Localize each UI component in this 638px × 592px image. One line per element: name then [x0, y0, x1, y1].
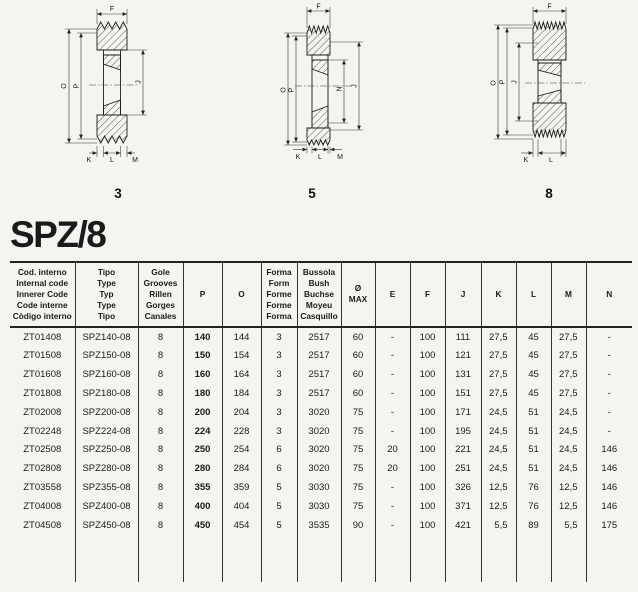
dim-label-f: F [547, 4, 551, 11]
table-cell: 371 [445, 497, 481, 516]
table-cell: 5,5 [481, 516, 516, 535]
column-header-line: Forme [263, 289, 296, 300]
table-cell: 8 [138, 384, 183, 403]
table-cell: 100 [410, 346, 445, 365]
column-header-line: Còdigo interno [11, 311, 74, 322]
table-cell: 8 [138, 422, 183, 441]
table-cell: 171 [445, 403, 481, 422]
table-cell: 454 [222, 516, 261, 535]
table-cell: 24,5 [481, 403, 516, 422]
column-header-line: Internal code [11, 278, 74, 289]
empty-cell [297, 534, 341, 582]
column-header: FormaFormFormeFormeForma [261, 262, 297, 327]
empty-filler-row [10, 534, 632, 582]
column-header: GoleGroovesRillenGorgesCanales [138, 262, 183, 327]
column-header-line: Canales [140, 311, 182, 322]
table-cell: SPZ250-08 [75, 440, 138, 459]
column-header-line: Tipo [77, 267, 137, 278]
table-cell: 251 [445, 459, 481, 478]
table-cell: 76 [516, 478, 551, 497]
table-cell: 51 [516, 403, 551, 422]
table-cell: 200 [183, 403, 222, 422]
dim-label-o: O [61, 83, 68, 89]
table-cell: 146 [586, 440, 632, 459]
table-cell: SPZ400-08 [75, 497, 138, 516]
table-cell: 2517 [297, 365, 341, 384]
table-cell: - [375, 327, 410, 347]
column-header-line: M [553, 289, 585, 300]
table-cell: 6 [261, 440, 297, 459]
pulley-diagram-form-5: F O P N [245, 2, 420, 215]
table-cell: ZT01808 [10, 384, 75, 403]
table-cell: 5 [261, 516, 297, 535]
table-row: ZT02508SPZ250-08825025463020752010022124… [10, 440, 632, 459]
dim-label-j: J [352, 84, 359, 88]
empty-cell [75, 534, 138, 582]
dim-label-l: L [110, 157, 114, 164]
table-cell: 160 [183, 365, 222, 384]
table-cell: 12,5 [551, 478, 586, 497]
column-header-line: L [518, 289, 550, 300]
table-cell: 75 [341, 478, 375, 497]
table-cell: 27,5 [551, 327, 586, 347]
column-header: M [551, 262, 586, 327]
table-cell: 100 [410, 516, 445, 535]
table-cell: SPZ180-08 [75, 384, 138, 403]
table-cell: 45 [516, 365, 551, 384]
table-cell: 3 [261, 365, 297, 384]
column-header-line: Bussola [299, 267, 340, 278]
dim-label-m: M [132, 157, 138, 164]
table-cell: 2517 [297, 327, 341, 347]
table-cell: 3 [261, 384, 297, 403]
table-cell: - [375, 478, 410, 497]
table-cell: 224 [183, 422, 222, 441]
dim-label-m: M [337, 154, 343, 161]
table-cell: 51 [516, 422, 551, 441]
table-cell: 75 [341, 440, 375, 459]
table-cell: 100 [410, 365, 445, 384]
table-cell: 8 [138, 327, 183, 347]
table-cell: 280 [183, 459, 222, 478]
column-header-line: Innerer Code [11, 289, 74, 300]
table-cell: 27,5 [551, 346, 586, 365]
column-header-line: O [224, 289, 260, 300]
dim-label-p: P [74, 83, 81, 88]
table-cell: - [586, 403, 632, 422]
table-cell: 180 [183, 384, 222, 403]
table-row: ZT01808SPZ180-0881801843251760-10015127,… [10, 384, 632, 403]
dim-label-k: K [87, 157, 92, 164]
column-header-line: Buchse [299, 289, 340, 300]
table-cell: 204 [222, 403, 261, 422]
table-cell: SPZ450-08 [75, 516, 138, 535]
table-cell: 6 [261, 459, 297, 478]
table-cell: 146 [586, 459, 632, 478]
table-cell: 5 [261, 497, 297, 516]
table-cell: 12,5 [481, 478, 516, 497]
table-row: ZT01608SPZ160-0881601643251760-10013127,… [10, 365, 632, 384]
column-header: K [481, 262, 516, 327]
table-row: ZT04008SPZ400-0884004045303075-10037112,… [10, 497, 632, 516]
column-header: Cod. internoInternal codeInnerer CodeCod… [10, 262, 75, 327]
table-cell: - [375, 422, 410, 441]
table-cell: 12,5 [481, 497, 516, 516]
table-cell: 24,5 [481, 440, 516, 459]
table-cell: 100 [410, 478, 445, 497]
column-header-line: Casquillo [299, 311, 340, 322]
empty-cell [261, 534, 297, 582]
table-cell: 100 [410, 497, 445, 516]
table-cell: 3 [261, 327, 297, 347]
table-cell: 27,5 [551, 365, 586, 384]
column-header-line: P [185, 289, 221, 300]
table-cell: 8 [138, 478, 183, 497]
table-row: ZT02248SPZ224-0882242283302075-10019524,… [10, 422, 632, 441]
column-header-line: Tipo [77, 311, 137, 322]
column-header: N [586, 262, 632, 327]
table-cell: - [586, 327, 632, 347]
dim-label-p: P [289, 87, 296, 92]
column-header-line: K [483, 289, 515, 300]
dim-label-l: L [318, 154, 322, 161]
table-cell: 121 [445, 346, 481, 365]
table-cell: ZT01408 [10, 327, 75, 347]
table-cell: 45 [516, 327, 551, 347]
table-cell: - [375, 516, 410, 535]
column-header-line: N [588, 289, 632, 300]
table-cell: 3020 [297, 422, 341, 441]
form-label-8: 8 [545, 186, 553, 201]
pulley-diagram-form-3: F O P J [55, 2, 230, 215]
pulley-diagrams-section: F O P J [0, 0, 638, 212]
column-header-line: Bush [299, 278, 340, 289]
table-cell: 140 [183, 327, 222, 347]
dim-label-j: J [512, 80, 519, 84]
dim-label-f: F [316, 4, 320, 11]
table-cell: 20 [375, 459, 410, 478]
table-cell: 8 [138, 346, 183, 365]
table-cell: 27,5 [481, 384, 516, 403]
column-header: E [375, 262, 410, 327]
dim-label-o: O [491, 80, 498, 86]
table-cell: 75 [341, 422, 375, 441]
table-cell: - [375, 346, 410, 365]
table-cell: 144 [222, 327, 261, 347]
table-cell: - [375, 403, 410, 422]
table-cell: 400 [183, 497, 222, 516]
column-header-line: Type [77, 300, 137, 311]
table-cell: ZT02248 [10, 422, 75, 441]
table-cell: 164 [222, 365, 261, 384]
table-cell: 250 [183, 440, 222, 459]
dim-label-f: F [110, 6, 114, 13]
column-header: J [445, 262, 481, 327]
table-cell: 131 [445, 365, 481, 384]
column-header: BussolaBushBuchseMoyeuCasquillo [297, 262, 341, 327]
dim-label-n: N [337, 86, 344, 91]
form-label-3: 3 [114, 186, 122, 201]
column-header-line: Ø [343, 283, 374, 294]
table-cell: 90 [341, 516, 375, 535]
table-cell: - [375, 497, 410, 516]
table-cell: 146 [586, 478, 632, 497]
spec-table-header: Cod. internoInternal codeInnerer CodeCod… [10, 262, 632, 327]
table-cell: 359 [222, 478, 261, 497]
column-header-line: Code interne [11, 300, 74, 311]
table-cell: 355 [183, 478, 222, 497]
table-cell: SPZ200-08 [75, 403, 138, 422]
table-cell: 8 [138, 497, 183, 516]
column-header-line: Type [77, 278, 137, 289]
table-cell: 100 [410, 440, 445, 459]
dim-label-l: L [549, 157, 553, 164]
table-cell: 228 [222, 422, 261, 441]
table-cell: 146 [586, 497, 632, 516]
table-row: ZT02808SPZ280-08828028463020752010025124… [10, 459, 632, 478]
table-cell: 3 [261, 403, 297, 422]
table-cell: - [586, 346, 632, 365]
table-cell: 100 [410, 459, 445, 478]
pulley-diagram-form-8: F O P J [445, 2, 638, 215]
table-cell: 20 [375, 440, 410, 459]
empty-cell [222, 534, 261, 582]
table-cell: 27,5 [551, 384, 586, 403]
table-cell: 284 [222, 459, 261, 478]
column-header-line: Forma [263, 311, 296, 322]
table-cell: 27,5 [481, 346, 516, 365]
table-cell: 195 [445, 422, 481, 441]
table-cell: 24,5 [551, 422, 586, 441]
page-title: SPZ/8 [10, 216, 638, 253]
table-row: ZT03558SPZ355-0883553595303075-10032612,… [10, 478, 632, 497]
table-cell: 8 [138, 403, 183, 422]
table-cell: ZT01508 [10, 346, 75, 365]
column-header: L [516, 262, 551, 327]
table-cell: 3030 [297, 497, 341, 516]
table-cell: 404 [222, 497, 261, 516]
table-cell: ZT02808 [10, 459, 75, 478]
column-header-line: J [447, 289, 480, 300]
table-cell: 76 [516, 497, 551, 516]
form-label-5: 5 [308, 186, 316, 201]
column-header: ØMAX [341, 262, 375, 327]
column-header: F [410, 262, 445, 327]
table-cell: 24,5 [551, 459, 586, 478]
table-cell: SPZ224-08 [75, 422, 138, 441]
table-cell: 60 [341, 365, 375, 384]
table-cell: 111 [445, 327, 481, 347]
table-cell: 45 [516, 346, 551, 365]
table-cell: - [586, 365, 632, 384]
table-cell: ZT02508 [10, 440, 75, 459]
table-cell: 75 [341, 403, 375, 422]
table-cell: 3020 [297, 440, 341, 459]
table-cell: 51 [516, 440, 551, 459]
table-cell: 3535 [297, 516, 341, 535]
table-row: ZT01408SPZ140-0881401443251760-10011127,… [10, 327, 632, 347]
table-cell: 75 [341, 497, 375, 516]
table-cell: SPZ280-08 [75, 459, 138, 478]
dim-label-j: J [136, 80, 143, 84]
table-cell: 3020 [297, 459, 341, 478]
table-cell: 154 [222, 346, 261, 365]
empty-cell [183, 534, 222, 582]
table-cell: ZT04508 [10, 516, 75, 535]
header-row: Cod. internoInternal codeInnerer CodeCod… [10, 262, 632, 327]
table-cell: 89 [516, 516, 551, 535]
table-cell: 221 [445, 440, 481, 459]
column-header-line: Moyeu [299, 300, 340, 311]
table-cell: 27,5 [481, 327, 516, 347]
table-cell: 100 [410, 327, 445, 347]
table-cell: 150 [183, 346, 222, 365]
table-cell: 60 [341, 327, 375, 347]
column-header-line: Form [263, 278, 296, 289]
spec-table-body: ZT01408SPZ140-0881401443251760-10011127,… [10, 327, 632, 583]
table-cell: 421 [445, 516, 481, 535]
column-header-line: MAX [343, 294, 374, 305]
column-header-line: Gorges [140, 300, 182, 311]
table-cell: 8 [138, 440, 183, 459]
table-cell: 2517 [297, 384, 341, 403]
spec-table: Cod. internoInternal codeInnerer CodeCod… [10, 261, 632, 582]
column-header: O [222, 262, 261, 327]
table-cell: 24,5 [481, 422, 516, 441]
empty-cell [410, 534, 445, 582]
column-header-line: Grooves [140, 278, 182, 289]
table-cell: 8 [138, 459, 183, 478]
column-header-line: Typ [77, 289, 137, 300]
table-cell: 12,5 [551, 497, 586, 516]
table-row: ZT01508SPZ150-0881501543251760-10012127,… [10, 346, 632, 365]
table-cell: SPZ150-08 [75, 346, 138, 365]
table-cell: 24,5 [551, 403, 586, 422]
dim-label-k: K [296, 154, 301, 161]
column-header-line: Cod. interno [11, 267, 74, 278]
empty-cell [375, 534, 410, 582]
table-cell: 60 [341, 346, 375, 365]
table-cell: ZT02008 [10, 403, 75, 422]
table-cell: 151 [445, 384, 481, 403]
table-cell: - [586, 422, 632, 441]
table-cell: 175 [586, 516, 632, 535]
table-cell: SPZ140-08 [75, 327, 138, 347]
table-cell: 3030 [297, 478, 341, 497]
empty-cell [551, 534, 586, 582]
table-cell: 3 [261, 346, 297, 365]
table-cell: 100 [410, 403, 445, 422]
empty-cell [586, 534, 632, 582]
column-header-line: Rillen [140, 289, 182, 300]
table-cell: 100 [410, 384, 445, 403]
empty-cell [445, 534, 481, 582]
table-row: ZT02008SPZ200-0882002043302075-10017124,… [10, 403, 632, 422]
table-cell: 5 [261, 478, 297, 497]
column-header: TipoTypeTypTypeTipo [75, 262, 138, 327]
table-cell: 45 [516, 384, 551, 403]
table-cell: SPZ160-08 [75, 365, 138, 384]
column-header-line: Forme [263, 300, 296, 311]
table-cell: ZT01608 [10, 365, 75, 384]
table-cell: - [586, 384, 632, 403]
empty-cell [10, 534, 75, 582]
table-cell: - [375, 384, 410, 403]
empty-cell [516, 534, 551, 582]
dim-label-k: K [524, 157, 529, 164]
table-cell: 450 [183, 516, 222, 535]
table-cell: 5,5 [551, 516, 586, 535]
column-header-line: Gole [140, 267, 182, 278]
table-cell: 100 [410, 422, 445, 441]
table-cell: 24,5 [551, 440, 586, 459]
column-header-line: F [412, 289, 444, 300]
table-cell: 3020 [297, 403, 341, 422]
table-cell: ZT04008 [10, 497, 75, 516]
table-cell: 8 [138, 365, 183, 384]
table-cell: - [375, 365, 410, 384]
table-cell: 75 [341, 459, 375, 478]
empty-cell [341, 534, 375, 582]
empty-cell [481, 534, 516, 582]
table-cell: ZT03558 [10, 478, 75, 497]
table-cell: 24,5 [481, 459, 516, 478]
table-cell: 326 [445, 478, 481, 497]
empty-cell [138, 534, 183, 582]
table-cell: 184 [222, 384, 261, 403]
table-cell: 254 [222, 440, 261, 459]
column-header: P [183, 262, 222, 327]
table-row: ZT04508SPZ450-0884504545353590-1004215,5… [10, 516, 632, 535]
column-header-line: E [377, 289, 409, 300]
table-cell: 2517 [297, 346, 341, 365]
dim-label-o: O [281, 87, 288, 93]
column-header-line: Forma [263, 267, 296, 278]
dim-label-p: P [500, 79, 507, 84]
table-cell: 60 [341, 384, 375, 403]
table-cell: SPZ355-08 [75, 478, 138, 497]
table-cell: 51 [516, 459, 551, 478]
table-cell: 3 [261, 422, 297, 441]
table-cell: 8 [138, 516, 183, 535]
table-cell: 27,5 [481, 365, 516, 384]
